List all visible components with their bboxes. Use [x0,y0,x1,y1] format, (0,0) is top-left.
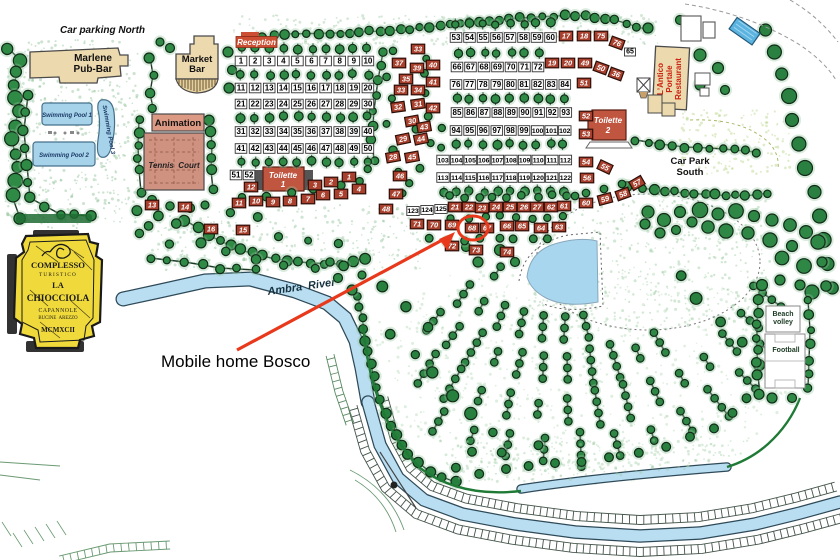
svg-text:69: 69 [493,62,502,71]
svg-text:105: 105 [465,157,477,164]
svg-text:40: 40 [428,61,438,70]
svg-text:Swimming Pool 2: Swimming Pool 2 [39,153,89,159]
svg-text:12: 12 [251,83,260,92]
svg-text:60: 60 [546,33,555,42]
svg-text:91: 91 [534,108,543,117]
svg-text:66: 66 [503,222,512,231]
svg-text:LA: LA [52,281,64,290]
svg-text:10: 10 [363,56,372,65]
svg-text:4: 4 [356,185,362,194]
svg-text:22: 22 [464,203,474,212]
svg-text:79: 79 [492,80,501,89]
svg-text:15: 15 [293,83,302,92]
svg-text:24: 24 [279,99,288,108]
svg-text:13: 13 [148,201,157,210]
svg-text:116: 116 [478,175,489,182]
svg-text:89: 89 [507,108,516,117]
svg-text:Tennis Court: Tennis Court [148,161,200,170]
svg-text:120: 120 [533,175,545,182]
svg-text:58: 58 [519,33,528,42]
svg-text:69: 69 [448,221,457,230]
svg-text:87: 87 [480,108,489,117]
svg-text:123: 123 [407,208,419,215]
svg-text:CAPANNOLE: CAPANNOLE [38,308,77,314]
svg-text:Reception: Reception [237,38,276,47]
svg-text:33: 33 [414,45,423,54]
svg-text:37: 37 [321,127,330,136]
svg-text:100: 100 [532,128,544,135]
svg-text:16: 16 [307,83,316,92]
svg-text:42: 42 [251,144,260,153]
svg-text:49: 49 [349,144,358,153]
svg-text:20: 20 [563,59,573,68]
svg-text:65: 65 [518,222,527,231]
svg-text:64: 64 [537,224,546,233]
svg-text:73: 73 [472,246,481,255]
svg-text:4: 4 [281,56,286,65]
svg-text:42: 42 [428,104,438,113]
svg-text:48: 48 [335,144,344,153]
svg-text:31: 31 [237,127,246,136]
svg-text:102: 102 [559,128,571,135]
svg-text:Toilette: Toilette [269,171,298,180]
svg-text:14: 14 [279,83,288,92]
svg-text:103: 103 [437,157,449,164]
svg-text:5: 5 [295,56,300,65]
svg-text:3: 3 [267,56,272,65]
svg-text:2: 2 [328,178,334,187]
svg-text:121: 121 [546,175,558,182]
svg-text:65: 65 [626,49,634,56]
svg-text:83: 83 [547,80,556,89]
svg-text:109: 109 [519,157,531,164]
svg-text:33: 33 [397,86,406,95]
svg-text:49: 49 [580,59,590,68]
svg-text:27: 27 [321,99,330,108]
svg-text:BUCINE AREZZO: BUCINE AREZZO [38,316,78,321]
svg-text:51: 51 [580,79,588,88]
svg-text:2: 2 [605,126,611,135]
svg-text:68: 68 [480,62,489,71]
svg-text:119: 119 [519,175,530,182]
svg-text:21: 21 [237,99,246,108]
svg-text:Portale: Portale [665,65,674,93]
svg-text:51: 51 [232,170,241,179]
svg-text:7: 7 [323,56,328,65]
svg-text:93: 93 [561,108,570,117]
svg-text:62: 62 [547,203,556,212]
svg-text:36: 36 [307,127,316,136]
svg-text:82: 82 [533,80,542,89]
svg-text:10: 10 [252,197,261,206]
svg-text:75: 75 [597,32,606,41]
svg-text:111: 111 [547,157,558,164]
svg-text:81: 81 [520,80,529,89]
svg-text:TURISTICO: TURISTICO [39,272,77,278]
svg-text:39: 39 [413,64,422,73]
svg-text:16: 16 [207,225,216,234]
svg-text:63: 63 [555,223,564,232]
svg-text:8: 8 [337,56,342,65]
svg-text:125: 125 [435,206,447,213]
svg-text:34: 34 [414,86,423,95]
svg-text:68: 68 [468,224,477,233]
svg-text:124: 124 [421,207,433,214]
svg-text:Marlene: Marlene [74,53,112,64]
svg-text:volley: volley [773,319,793,326]
svg-text:29: 29 [349,99,358,108]
svg-text:104: 104 [451,157,463,164]
svg-text:101: 101 [546,128,558,135]
svg-text:South: South [677,167,704,178]
svg-text:1: 1 [281,180,286,189]
svg-text:53: 53 [452,33,461,42]
svg-text:85: 85 [453,108,462,117]
svg-text:86: 86 [466,108,475,117]
svg-text:74: 74 [503,248,512,257]
svg-text:1: 1 [347,173,351,182]
svg-text:47: 47 [321,144,330,153]
svg-text:2: 2 [253,56,258,65]
svg-text:47: 47 [391,190,401,199]
svg-text:LʼAntico: LʼAntico [656,63,665,95]
svg-text:70: 70 [430,221,439,230]
svg-text:88: 88 [493,108,502,117]
svg-text:66: 66 [453,62,462,71]
svg-text:71: 71 [413,220,421,229]
svg-text:53: 53 [582,130,591,139]
svg-text:117: 117 [492,175,503,182]
svg-text:28: 28 [335,99,344,108]
svg-text:96: 96 [479,126,488,135]
svg-text:26: 26 [307,99,316,108]
svg-text:46: 46 [395,172,405,181]
svg-text:21: 21 [450,203,459,212]
svg-text:39: 39 [349,127,358,136]
svg-text:48: 48 [381,205,391,214]
svg-text:1: 1 [239,56,244,65]
svg-text:67: 67 [466,62,475,71]
svg-text:118: 118 [506,175,517,182]
svg-text:18: 18 [335,83,344,92]
svg-text:52: 52 [245,170,254,179]
svg-text:84: 84 [560,80,569,89]
svg-text:113: 113 [438,175,449,182]
svg-text:25: 25 [293,99,302,108]
svg-text:55: 55 [479,33,488,42]
svg-text:19: 19 [548,59,557,68]
svg-text:Mobile home Bosco: Mobile home Bosco [161,352,310,371]
svg-text:25: 25 [505,203,515,212]
svg-text:12: 12 [247,183,256,192]
svg-text:90: 90 [521,108,530,117]
svg-text:37: 37 [395,59,404,68]
svg-text:61: 61 [560,202,568,211]
svg-text:50: 50 [363,144,372,153]
svg-text:115: 115 [465,175,476,182]
svg-text:54: 54 [582,158,591,167]
svg-text:38: 38 [335,127,344,136]
svg-text:Beach: Beach [772,311,793,318]
svg-text:Restaurant: Restaurant [674,58,683,100]
svg-text:14: 14 [181,203,190,212]
svg-text:18: 18 [580,32,589,41]
svg-text:Toilette: Toilette [594,116,623,125]
svg-text:32: 32 [251,127,260,136]
svg-text:76: 76 [452,80,461,89]
svg-text:23: 23 [477,204,487,213]
svg-text:59: 59 [533,33,542,42]
svg-text:110: 110 [533,157,544,164]
svg-text:24: 24 [491,203,501,212]
svg-text:11: 11 [237,83,246,92]
svg-text:56: 56 [492,33,501,42]
svg-text:13: 13 [265,83,274,92]
svg-text:31: 31 [413,99,423,109]
svg-text:9: 9 [352,56,357,65]
svg-text:26: 26 [519,203,529,212]
svg-text:Bar: Bar [189,64,205,75]
svg-text:43: 43 [265,144,274,153]
svg-text:35: 35 [293,127,302,136]
svg-text:34: 34 [279,127,288,136]
svg-text:40: 40 [363,127,372,136]
svg-text:92: 92 [548,108,557,117]
svg-text:98: 98 [506,126,515,135]
svg-text:23: 23 [265,99,274,108]
svg-text:20: 20 [363,83,372,92]
svg-text:45: 45 [293,144,302,153]
svg-text:41: 41 [237,144,246,153]
svg-text:30: 30 [363,99,372,108]
svg-text:41: 41 [428,78,437,87]
svg-text:77: 77 [465,80,474,89]
svg-text:122: 122 [560,175,572,182]
svg-text:35: 35 [402,75,411,84]
svg-text:60: 60 [582,199,591,208]
svg-text:107: 107 [492,157,504,164]
svg-text:54: 54 [465,33,474,42]
svg-text:33: 33 [265,127,274,136]
svg-text:112: 112 [560,157,571,164]
svg-text:Pub-Bar: Pub-Bar [74,64,113,75]
svg-text:17: 17 [321,83,330,92]
svg-text:80: 80 [506,80,515,89]
svg-text:52: 52 [582,112,591,121]
svg-text:78: 78 [479,80,488,89]
svg-text:106: 106 [478,157,490,164]
svg-text:44: 44 [279,144,288,153]
svg-text:27: 27 [532,203,542,212]
svg-text:71: 71 [520,62,529,71]
svg-text:COMPLESSO: COMPLESSO [31,260,85,270]
svg-text:6: 6 [309,56,314,65]
svg-text:Car Park: Car Park [670,156,710,167]
svg-text:46: 46 [307,144,316,153]
svg-text:95: 95 [465,126,474,135]
svg-text:72: 72 [534,62,543,71]
svg-text:114: 114 [451,175,462,182]
svg-text:11: 11 [235,199,243,208]
svg-text:57: 57 [506,33,515,42]
svg-text:99: 99 [520,126,529,135]
svg-text:15: 15 [239,226,248,235]
svg-text:56: 56 [583,174,592,183]
svg-text:Animation: Animation [155,118,202,129]
svg-text:70: 70 [507,62,516,71]
svg-text:Swimming Pool 1: Swimming Pool 1 [42,113,92,119]
svg-text:19: 19 [349,83,358,92]
svg-text:94: 94 [452,126,461,135]
svg-text:Football: Football [772,347,799,354]
svg-text:108: 108 [505,157,517,164]
svg-text:97: 97 [492,126,501,135]
svg-text:17: 17 [562,32,571,41]
svg-text:22: 22 [251,99,260,108]
svg-text:Car parking North: Car parking North [60,25,145,36]
